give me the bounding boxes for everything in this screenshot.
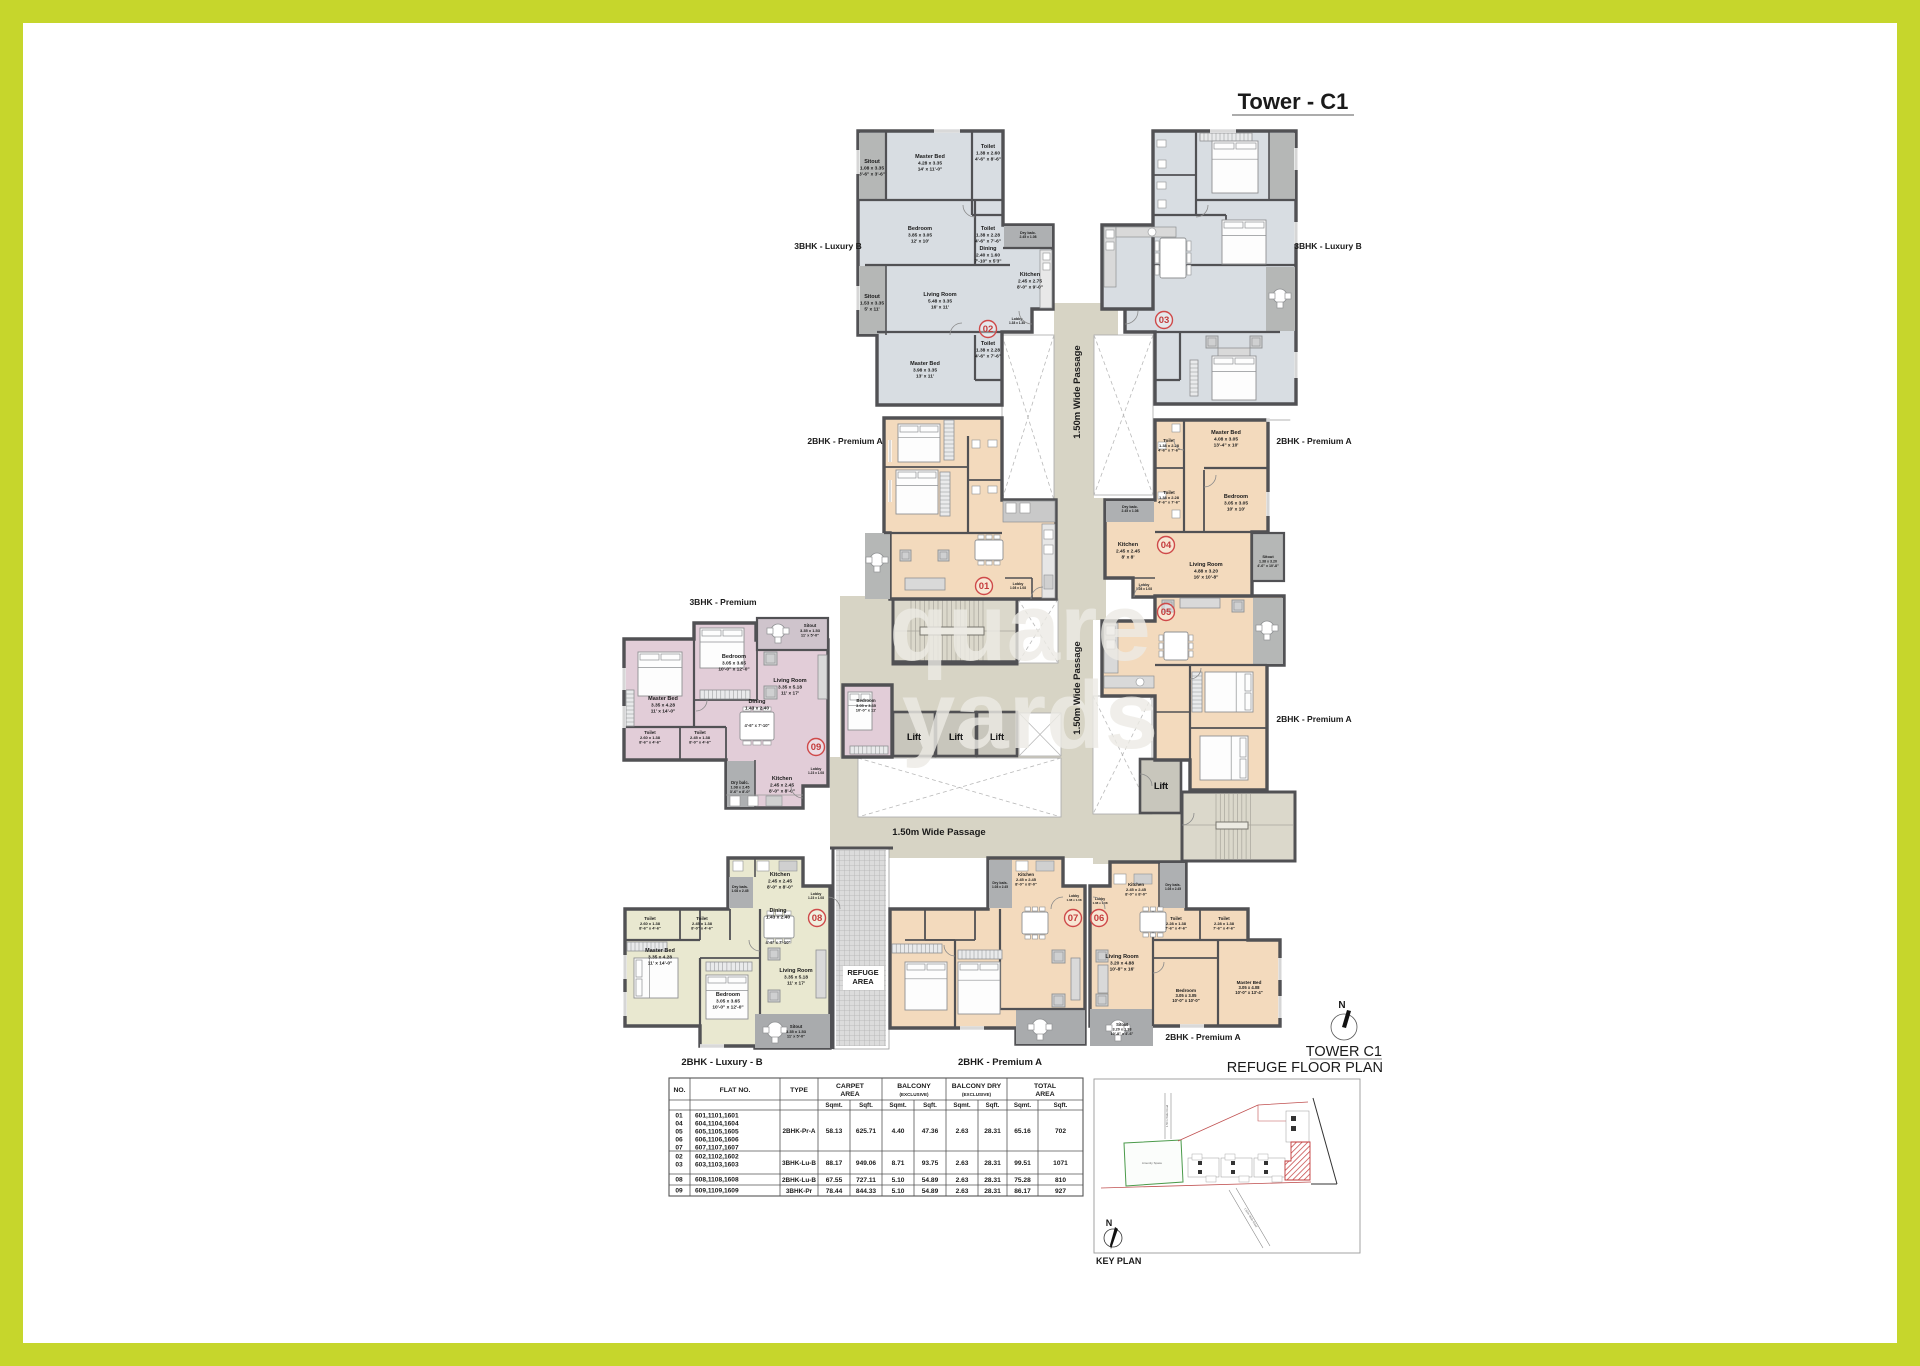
svg-text:3'-6" x 8'-0": 3'-6" x 8'-0" [730,790,751,794]
svg-text:1.38 x 1.38: 1.38 x 1.38 [1009,321,1025,325]
svg-text:3.20 x 4.88: 3.20 x 4.88 [1110,961,1134,967]
svg-text:REFUGE: REFUGE [847,968,878,977]
svg-text:06: 06 [1094,913,1105,924]
svg-text:10'-0" x 13'-4": 10'-0" x 13'-4" [1235,990,1262,995]
svg-text:11' x 5'-0": 11' x 5'-0" [801,633,819,638]
svg-text:67.55: 67.55 [826,1177,843,1184]
svg-text:2.45 x 2.45: 2.45 x 2.45 [1116,549,1140,555]
svg-text:2BHK - Premium A: 2BHK - Premium A [1276,436,1351,446]
svg-text:07: 07 [1068,913,1079,924]
svg-text:3'-6" x 3'-6": 3'-6" x 3'-6" [859,171,885,177]
svg-text:810: 810 [1055,1177,1066,1184]
svg-text:Sqmt.: Sqmt. [889,1102,906,1109]
svg-text:Bedroom: Bedroom [722,654,746,660]
svg-text:3.05 x 3.65: 3.05 x 3.65 [716,999,740,1005]
svg-text:8'-0" x 8'-0": 8'-0" x 8'-0" [1015,882,1037,887]
svg-text:09: 09 [811,742,822,753]
svg-text:Sitout: Sitout [864,294,880,300]
svg-text:47.36: 47.36 [922,1128,939,1135]
svg-text:1071: 1071 [1053,1160,1068,1167]
svg-text:05: 05 [675,1129,683,1136]
svg-text:4.88 x 3.20: 4.88 x 3.20 [1194,569,1218,575]
svg-text:2BHK - Premium A: 2BHK - Premium A [1165,1032,1240,1042]
svg-text:11' x 17': 11' x 17' [787,980,805,986]
svg-text:KEY PLAN: KEY PLAN [1096,1256,1141,1266]
svg-text:13' x 11': 13' x 11' [916,373,934,379]
svg-text:2.45 x 1.08: 2.45 x 1.08 [1020,235,1037,239]
svg-text:01: 01 [675,1113,683,1120]
svg-text:7'-10" x 5'3": 7'-10" x 5'3" [974,258,1001,264]
svg-text:Kitchen: Kitchen [1118,542,1139,548]
svg-text:607,1107,1607: 607,1107,1607 [695,1145,739,1152]
svg-text:3.35 x 5.18: 3.35 x 5.18 [784,975,808,981]
svg-text:Living Room: Living Room [1105,954,1138,960]
svg-text:Sqft.: Sqft. [859,1102,873,1109]
svg-text:Bedroom: Bedroom [908,226,932,232]
svg-text:28.31: 28.31 [984,1160,1001,1167]
svg-text:10'-0" x 10'-0": 10'-0" x 10'-0" [1172,998,1199,1003]
svg-text:1.08 x 2.45: 1.08 x 2.45 [992,885,1008,889]
svg-text:93.75: 93.75 [922,1160,939,1167]
svg-text:BALCONY DRY: BALCONY DRY [952,1083,1002,1090]
svg-text:5' x 11': 5' x 11' [864,306,879,312]
svg-text:602,1102,1602: 602,1102,1602 [695,1154,739,1161]
svg-text:2.63: 2.63 [956,1188,969,1195]
svg-text:13'-4" x 10': 13'-4" x 10' [1214,442,1239,448]
svg-text:8'-0" x 4'-6": 8'-0" x 4'-6" [691,926,713,931]
svg-text:2.45 x 2.45: 2.45 x 2.45 [770,783,794,789]
svg-text:58.13: 58.13 [826,1128,843,1135]
svg-text:1.23 x 1.08: 1.23 x 1.08 [808,896,824,900]
svg-text:3BHK - Luxury B: 3BHK - Luxury B [1294,241,1362,251]
svg-text:3BHK - Premium: 3BHK - Premium [689,597,757,607]
svg-text:54.89: 54.89 [922,1177,939,1184]
svg-text:3.85 x 3.05: 3.85 x 3.05 [908,233,932,239]
svg-text:2.63: 2.63 [956,1160,969,1167]
svg-text:78.44: 78.44 [826,1188,843,1195]
svg-text:BALCONY: BALCONY [897,1083,931,1090]
svg-text:Master Bed: Master Bed [910,361,940,367]
svg-text:AREA: AREA [840,1091,859,1098]
svg-text:Lift: Lift [907,732,921,742]
svg-text:Sqmt.: Sqmt. [825,1102,842,1109]
svg-text:Kitchen: Kitchen [770,872,791,878]
svg-text:4'-6" x 7'-6": 4'-6" x 7'-6" [975,353,1001,359]
svg-text:28.31: 28.31 [984,1188,1001,1195]
svg-text:Sqft.: Sqft. [1054,1102,1068,1109]
svg-text:Kitchen: Kitchen [1020,272,1041,278]
svg-text:1.38 x 2.60: 1.38 x 2.60 [976,151,1000,157]
svg-text:1.08 x 2.45: 1.08 x 2.45 [730,786,749,790]
svg-text:609,1109,1609: 609,1109,1609 [695,1188,739,1195]
svg-text:2.45 x 1.08: 2.45 x 1.08 [1122,509,1139,513]
svg-text:2.45 x 2.45: 2.45 x 2.45 [768,879,792,885]
svg-text:949.06: 949.06 [856,1160,877,1167]
svg-text:1.38 x 2.28: 1.38 x 2.28 [976,233,1000,239]
svg-text:1.08 x 2.45: 1.08 x 2.45 [1165,887,1181,891]
svg-text:10'-8" x 16': 10'-8" x 16' [1110,966,1135,972]
svg-text:02: 02 [983,324,994,335]
svg-text:11' x 14'-0": 11' x 14'-0" [648,960,673,966]
svg-text:3BHK - Luxury B: 3BHK - Luxury B [794,241,862,251]
svg-text:TOTAL: TOTAL [1034,1083,1056,1090]
svg-text:3.35 x 4.28: 3.35 x 4.28 [648,955,672,961]
svg-text:927: 927 [1055,1188,1066,1195]
svg-text:604,1104,1604: 604,1104,1604 [695,1121,739,1128]
svg-text:625.71: 625.71 [856,1128,877,1135]
svg-text:4'-6" x 7'-6": 4'-6" x 7'-6" [975,238,1001,244]
svg-text:Master Bed: Master Bed [648,696,678,702]
svg-text:Sitout: Sitout [1116,1022,1128,1027]
svg-text:Living Room: Living Room [779,968,812,974]
svg-text:727.11: 727.11 [856,1177,876,1184]
svg-text:Toilet: Toilet [981,144,995,150]
svg-text:11' x 5'-0": 11' x 5'-0" [787,1034,805,1039]
svg-text:1.53 x 3.35: 1.53 x 3.35 [860,301,884,307]
svg-text:2.45 x 2.75: 2.45 x 2.75 [1018,279,1042,285]
svg-text:Dining: Dining [769,908,786,914]
svg-text:Master Bed: Master Bed [645,948,675,954]
svg-text:4.08 x 3.05: 4.08 x 3.05 [1214,437,1238,443]
svg-text:1.08 x 1.08: 1.08 x 1.08 [1092,901,1107,905]
svg-text:Sqft.: Sqft. [923,1102,937,1109]
svg-text:10' x 10': 10' x 10' [1227,506,1245,512]
svg-text:2.63: 2.63 [956,1128,969,1135]
svg-text:Sitout: Sitout [864,159,880,165]
svg-text:Toilet: Toilet [981,226,995,232]
svg-text:702: 702 [1055,1128,1066,1135]
svg-text:1.08 x 2.45: 1.08 x 2.45 [732,889,749,893]
svg-text:07: 07 [675,1145,683,1152]
svg-text:Kitchen: Kitchen [772,776,793,782]
svg-text:1.43 x 2.40: 1.43 x 2.40 [745,706,769,712]
svg-text:08: 08 [812,913,823,924]
svg-text:8'-0" x 4'-6": 8'-0" x 4'-6" [689,740,711,745]
svg-text:2BHK - Premium A: 2BHK - Premium A [807,436,882,446]
svg-text:3.05 x 3.05: 3.05 x 3.05 [1224,501,1248,507]
svg-text:05: 05 [1161,607,1172,618]
svg-text:1.08 x 3.35: 1.08 x 3.35 [860,166,884,172]
svg-text:65.16: 65.16 [1014,1128,1031,1135]
svg-text:11' x 17': 11' x 17' [781,690,799,696]
svg-text:8'-0" x 8'-0": 8'-0" x 8'-0" [1125,892,1147,897]
svg-text:Living Room: Living Room [1189,562,1222,568]
svg-text:10'-0" x 11': 10'-0" x 11' [856,708,877,713]
svg-text:4.40: 4.40 [892,1128,905,1135]
svg-text:5.10: 5.10 [892,1177,905,1184]
svg-text:09: 09 [675,1188,683,1195]
svg-text:86.17: 86.17 [1014,1188,1031,1195]
svg-text:Dining: Dining [748,699,765,705]
svg-text:8' x 8': 8' x 8' [1122,554,1135,560]
svg-text:1.50m Wide Passage: 1.50m Wide Passage [1072,641,1083,734]
svg-text:Master Bed: Master Bed [915,154,945,160]
svg-text:03: 03 [675,1162,683,1169]
svg-text:8'-6" x 4'-6": 8'-6" x 4'-6" [639,926,661,931]
svg-text:Amenity Space: Amenity Space [1142,1161,1163,1165]
svg-text:Sitout: Sitout [1262,554,1274,559]
svg-text:1.50m Wide Passage: 1.50m Wide Passage [892,827,985,838]
svg-text:1.08 x 1.08: 1.08 x 1.08 [1066,898,1081,902]
svg-text:606,1106,1606: 606,1106,1606 [695,1137,739,1144]
svg-text:2.40 x 1.60: 2.40 x 1.60 [976,253,1000,259]
svg-text:10'-0" x 12'-0": 10'-0" x 12'-0" [712,1004,743,1010]
svg-text:8'-0" x 9'-0": 8'-0" x 9'-0" [1017,284,1043,290]
svg-text:10'-0" x 12'-0": 10'-0" x 12'-0" [718,666,749,672]
svg-text:Dining: Dining [979,246,996,252]
svg-text:4'-6" x 10'-8": 4'-6" x 10'-8" [1257,564,1279,568]
svg-text:02: 02 [675,1154,683,1161]
svg-text:N: N [1338,1000,1345,1011]
svg-text:4'-6" x 7'-6": 4'-6" x 7'-6" [1158,448,1180,453]
svg-text:7'-6" x 4'-6": 7'-6" x 4'-6" [1213,926,1235,931]
svg-text:11' x 14'-0": 11' x 14'-0" [651,708,676,714]
svg-text:Lift: Lift [949,732,963,742]
svg-text:10'-8" x 4'-6": 10'-8" x 4'-6" [1111,1032,1134,1036]
svg-text:5.10: 5.10 [892,1188,905,1195]
svg-text:75.28: 75.28 [1014,1177,1031,1184]
svg-text:1.38 x 2.28: 1.38 x 2.28 [976,348,1000,354]
svg-text:3.35 x 5.18: 3.35 x 5.18 [778,685,802,691]
svg-text:2BHK - Premium A: 2BHK - Premium A [1276,714,1351,724]
svg-text:7'-6" x 4'-6": 7'-6" x 4'-6" [1165,926,1187,931]
svg-text:4'-6" x 7'-10": 4'-6" x 7'-10" [744,723,769,728]
svg-text:3BHK-Lu-B: 3BHK-Lu-B [782,1160,816,1167]
svg-text:Living Room: Living Room [923,292,956,298]
svg-text:8'-0" x 8'-0": 8'-0" x 8'-0" [767,884,793,890]
svg-text:yards: yards [902,662,1158,769]
svg-text:(EXCLUSIVE): (EXCLUSIVE) [899,1092,929,1097]
svg-text:4'-6" x 8'-6": 4'-6" x 8'-6" [975,156,1001,162]
svg-text:603,1103,1603: 603,1103,1603 [695,1162,739,1169]
svg-text:2BHK-Pr-A: 2BHK-Pr-A [782,1128,815,1135]
svg-text:08: 08 [675,1177,683,1184]
svg-text:4'-6" x 7'-6": 4'-6" x 7'-6" [1158,500,1180,505]
svg-text:1.50m Wide Passage: 1.50m Wide Passage [1072,345,1083,438]
svg-text:Lift: Lift [990,732,1004,742]
svg-text:3.05 x 3.65: 3.05 x 3.65 [722,661,746,667]
svg-text:8'-6" x 4'-6": 8'-6" x 4'-6" [639,740,661,745]
svg-text:28.31: 28.31 [984,1177,1001,1184]
svg-text:Sqft.: Sqft. [986,1102,1000,1109]
svg-text:16' x 10'-8": 16' x 10'-8" [1194,574,1219,580]
svg-text:TYPE: TYPE [790,1087,808,1094]
svg-text:Master Bed: Master Bed [1211,430,1241,436]
svg-text:NO.: NO. [673,1087,685,1094]
svg-text:04: 04 [675,1121,683,1128]
svg-text:2BHK-Lu-B: 2BHK-Lu-B [782,1177,816,1184]
svg-text:Living Room: Living Room [773,678,806,684]
svg-text:2BHK - Premium A: 2BHK - Premium A [958,1057,1042,1068]
svg-text:28.31: 28.31 [984,1128,1001,1135]
svg-text:REFUGE FLOOR PLAN: REFUGE FLOOR PLAN [1227,1060,1383,1076]
svg-text:3.35 x 4.28: 3.35 x 4.28 [651,703,675,709]
svg-text:Tower - C1: Tower - C1 [1238,89,1349,114]
svg-text:AREA: AREA [1035,1091,1054,1098]
svg-text:8.71: 8.71 [892,1160,905,1167]
svg-text:Lift: Lift [1154,781,1168,791]
svg-text:Toilet: Toilet [981,341,995,347]
svg-text:Bedroom: Bedroom [1224,494,1248,500]
svg-text:99.51: 99.51 [1014,1160,1031,1167]
svg-text:4'-6" x 7'-10": 4'-6" x 7'-10" [765,940,790,945]
svg-text:3BHK-Pr: 3BHK-Pr [786,1188,813,1195]
svg-text:12' x 10': 12' x 10' [911,238,929,244]
svg-text:605,1105,1605: 605,1105,1605 [695,1129,739,1136]
svg-text:FLAT NO.: FLAT NO. [720,1087,751,1094]
svg-text:03: 03 [1159,315,1170,326]
svg-text:(EXCLUSIVE): (EXCLUSIVE) [962,1092,992,1097]
svg-text:16' x 11': 16' x 11' [931,304,949,310]
svg-text:06: 06 [675,1137,683,1144]
svg-text:601,1101,1601: 601,1101,1601 [695,1113,739,1120]
svg-text:3.20 x 1.38: 3.20 x 1.38 [1112,1028,1131,1032]
svg-text:2.63: 2.63 [956,1177,969,1184]
svg-text:2BHK - Luxury - B: 2BHK - Luxury - B [681,1057,762,1068]
svg-text:5.48 x 3.35: 5.48 x 3.35 [928,299,952,305]
svg-text:CARPET: CARPET [836,1083,865,1090]
svg-text:1.23 x 1.08: 1.23 x 1.08 [808,771,824,775]
svg-text:Sqmt.: Sqmt. [1014,1102,1031,1109]
svg-text:Bedroom: Bedroom [716,992,740,998]
svg-text:04: 04 [1161,540,1172,551]
svg-text:Sqmt.: Sqmt. [953,1102,970,1109]
svg-text:Dry balc.: Dry balc. [731,780,749,785]
svg-text:1.38 x 3.20: 1.38 x 3.20 [1259,559,1277,563]
svg-text:14' x 11'-0": 14' x 11'-0" [918,166,943,172]
svg-text:1.43 x 2.40: 1.43 x 2.40 [766,915,790,921]
svg-text:4.28 x 3.35: 4.28 x 3.35 [918,161,942,167]
svg-text:N: N [1106,1218,1113,1228]
svg-text:844.33: 844.33 [856,1188,877,1195]
svg-text:TOWER C1: TOWER C1 [1306,1044,1382,1060]
svg-text:88.17: 88.17 [826,1160,843,1167]
svg-text:608,1108,1608: 608,1108,1608 [695,1177,739,1184]
svg-text:3.98 x 3.35: 3.98 x 3.35 [913,368,937,374]
svg-text:1.50m Wide Road: 1.50m Wide Road [1165,1104,1169,1127]
svg-text:54.89: 54.89 [922,1188,939,1195]
svg-text:AREA: AREA [852,977,874,986]
